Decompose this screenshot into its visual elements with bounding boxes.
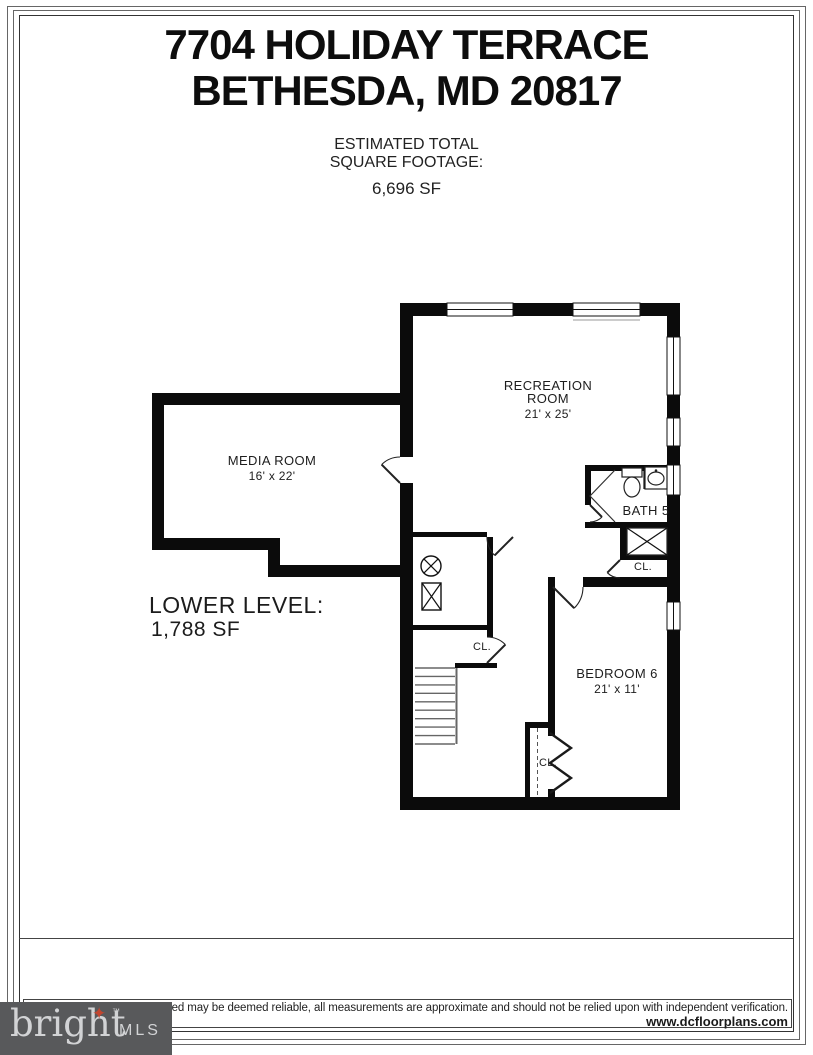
wall-utility-top [413,532,487,537]
sink-faucet-icon [655,469,658,472]
floorplan-page: 7704 HOLIDAY TERRACE BETHESDA, MD 20817 … [0,0,813,1055]
website-text: www.dcfloorplans.com [646,1014,788,1029]
recreation-room-label: RECREATION ROOM 21' x 25' [468,379,628,421]
wall-media-left [152,393,164,550]
brightmls-logo: bright ✦ ™ MLS [0,1002,172,1055]
disclaimer-text: cluded may be deemed reliable, all measu… [151,1002,788,1014]
media-room-dims: 16' x 22' [192,470,352,483]
bath-door-arc [590,517,602,522]
level-area: 1,788 SF [151,618,240,642]
bedroom6-dims: 21' x 11' [537,683,697,696]
wall-media-top [152,393,413,405]
sink-basin-icon [648,472,664,485]
wall-bedroom-top [583,577,680,587]
level-name: LOWER LEVEL: [149,592,324,619]
toilet-bowl-icon [624,477,640,497]
bedroom6-label: BEDROOM 6 21' x 11' [537,667,697,696]
wall-main-bottom [400,797,680,810]
wall-media-bottom-2 [268,565,413,577]
wall-utility-bottom [400,625,493,630]
trademark-symbol: ™ [112,1007,120,1016]
bath5-label: BATH 5 [602,504,690,517]
floorplan-drawing [0,0,813,1055]
stairs-icon [415,668,457,744]
media-door-leaf [382,465,400,483]
wall-closet-bottom [455,663,497,668]
media-door-arc [382,457,400,465]
wall-linen-left [620,522,627,560]
bedroom-door-arc [574,587,583,608]
bedroom6-name: BEDROOM 6 [537,667,697,680]
bright-logo-text: bright [10,1002,126,1045]
media-room-name: MEDIA ROOM [192,454,352,467]
bath5-name: BATH 5 [602,504,690,517]
recreation-room-name-2: ROOM [468,392,628,405]
utility-door-leaf [495,537,513,555]
wall-media-bottom-1 [152,538,280,550]
star-icon: ✦ [92,1004,106,1024]
wall-main-left-lower [400,483,413,810]
bath-closet-label: CL. [619,561,667,573]
utility-symbols-group [421,556,441,610]
wall-closet-stub [487,630,493,637]
toilet-tank-icon [622,468,642,477]
hall-closet-label: CL. [458,641,506,653]
media-room-label: MEDIA ROOM 16' x 22' [192,454,352,483]
wall-bedroom-left [548,577,555,722]
recreation-room-dims: 21' x 25' [468,408,628,421]
mls-logo-text: MLS [119,1022,161,1040]
wall-main-left-upper [400,303,413,457]
wall-linen-bottom [620,555,667,560]
bedroom-door-leaf [553,587,574,608]
linen-closet-icon [627,528,667,555]
bedroom-closet-label: CL. [524,757,572,769]
doors-group [382,457,620,663]
